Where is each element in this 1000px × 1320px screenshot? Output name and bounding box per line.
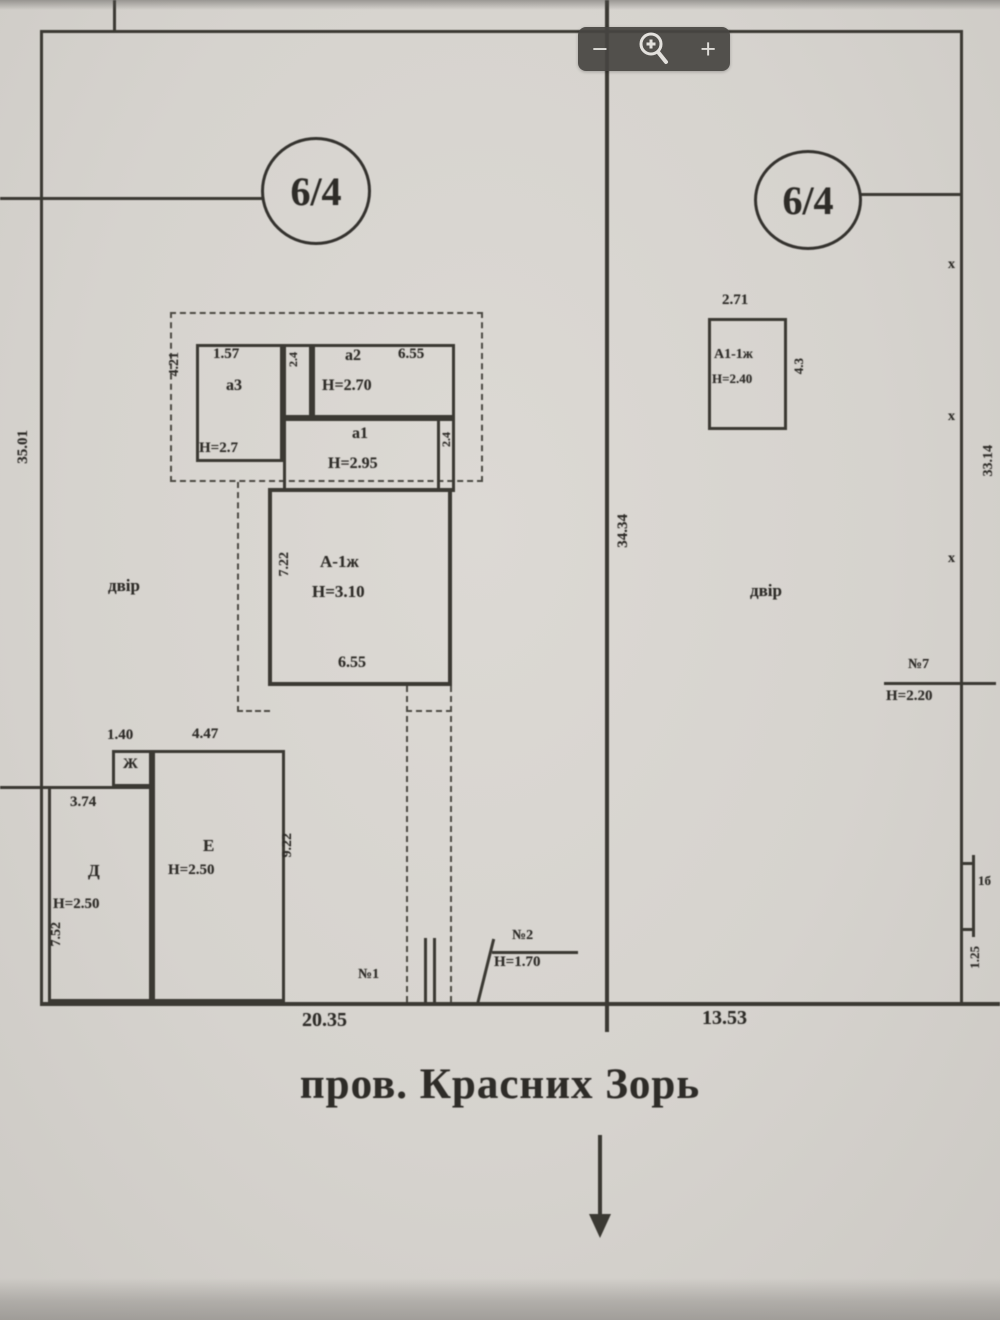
room-a3-height: Н=2.7 [199, 441, 238, 457]
right-plot-number: 6/4 [782, 177, 833, 224]
shed-zh-label: Ж [123, 757, 138, 773]
summer-house-height: Н=2.40 [712, 372, 752, 386]
right-plot-number-circle: 6/4 [754, 150, 862, 250]
main-house-bottom-dim: 6.55 [338, 655, 366, 672]
fence7-line [884, 682, 996, 685]
fence7-label: №7 [908, 658, 929, 673]
edge-small-structure-line [972, 855, 975, 937]
sliver-left-dim: 2.4 [287, 352, 300, 367]
zoom-out-button[interactable]: − [592, 36, 608, 63]
edge-mark-2: х [948, 410, 955, 425]
left-frontage-dim: 20.35 [302, 1010, 347, 1031]
left-side-dim: 35.01 [16, 430, 32, 464]
top-boundary-line [40, 30, 962, 33]
room-a2-label: а2 [345, 348, 361, 365]
main-house-side-dim: 7.22 [278, 552, 293, 577]
street-name: пров. Красних Зорь [0, 1062, 1000, 1107]
dashed-path-left-foot [237, 710, 270, 712]
dashed-walk-right [450, 686, 452, 1002]
room-a2-height: Н=2.70 [322, 378, 372, 395]
room-sliver-right-outline [437, 418, 455, 492]
shed-d-outline [48, 786, 152, 1002]
shed-zh-top-dim: 1.40 [107, 728, 133, 744]
street-axis-line [605, 0, 609, 1032]
left-boundary-line [40, 30, 43, 1005]
fence7-height: Н=2.20 [886, 689, 932, 705]
shed-e-label: Е [203, 837, 214, 855]
dashed-walk-left [406, 686, 408, 1002]
summer-house-label: А1-1ж [714, 348, 753, 363]
room-a3-label: а3 [226, 378, 242, 395]
gate2-label: №2 [512, 929, 533, 944]
dashed-walk-cross [406, 710, 452, 712]
edge-mark-3: х [948, 552, 955, 567]
left-yard-label: двір [108, 577, 140, 595]
street-frontage-line [40, 1002, 1000, 1006]
summer-house-top-dim: 2.71 [722, 293, 748, 309]
shed-e-side-dim: 9.22 [281, 833, 296, 858]
magnifier-plus-icon [637, 31, 671, 67]
gate2-slant-line [476, 939, 495, 1006]
bottom-edge-shade [0, 1278, 1000, 1320]
edge-small-label: 1б [978, 874, 991, 888]
main-house-label: А-1ж [320, 553, 359, 571]
room-a2-width-dim: 6.55 [398, 347, 424, 363]
edge-mark-1: х [948, 258, 955, 273]
right-frontage-dim: 13.53 [702, 1008, 747, 1029]
shed-d-height: Н=2.50 [53, 897, 99, 913]
room-a3-top-dim: 1.57 [213, 347, 239, 363]
gate1-post-left [424, 938, 427, 1002]
edge-small-dim: 1.25 [968, 946, 982, 969]
gate1-label: №1 [358, 968, 379, 983]
left-plot-number: 6/4 [290, 168, 341, 215]
zoom-toolbar[interactable]: − + [578, 27, 730, 71]
gate1-post-right [433, 938, 436, 1002]
summer-house-side-dim: 4.3 [792, 358, 806, 374]
axis-dim: 34.34 [616, 514, 632, 548]
gate2-height: Н=1.70 [494, 955, 540, 971]
zoom-in-button[interactable]: + [700, 36, 716, 63]
room-a1-side-dim: 2.4 [440, 432, 453, 447]
right-boundary-line [960, 30, 963, 1005]
street-axis-arrow-shaft [598, 1135, 602, 1218]
site-plan-canvas: 6/4 6/4 1.57 а3 Н=2.7 4.21 2.4 а2 6.55 Н… [0, 0, 1000, 1320]
room-a1-label: а1 [352, 426, 368, 443]
shed-e-top-dim: 4.47 [192, 727, 218, 743]
main-house-height: Н=3.10 [312, 583, 365, 601]
dashed-path-left [237, 482, 239, 712]
shed-d-top-dim: 3.74 [70, 795, 96, 811]
edge-small-structure-top [960, 862, 975, 865]
right-yard-label: двір [750, 582, 782, 600]
rear-line-left [0, 197, 263, 200]
room-a1-height: Н=2.95 [328, 456, 378, 473]
street-axis-arrowhead-icon [589, 1214, 611, 1238]
left-plot-number-circle: 6/4 [261, 137, 371, 245]
edge-small-structure-bottom [960, 928, 975, 931]
rear-line-right [860, 193, 962, 196]
shed-e-height: Н=2.50 [168, 863, 214, 879]
top-edge-shade [0, 0, 1000, 10]
image-viewer[interactable]: 6/4 6/4 1.57 а3 Н=2.7 4.21 2.4 а2 6.55 Н… [0, 0, 1000, 1320]
right-edge-dim: 33.14 [982, 445, 997, 477]
shed-d-side-dim: 7.52 [50, 922, 65, 947]
shed-d-label: Д [88, 862, 100, 880]
veranda-side-dim: 4.21 [168, 352, 183, 377]
